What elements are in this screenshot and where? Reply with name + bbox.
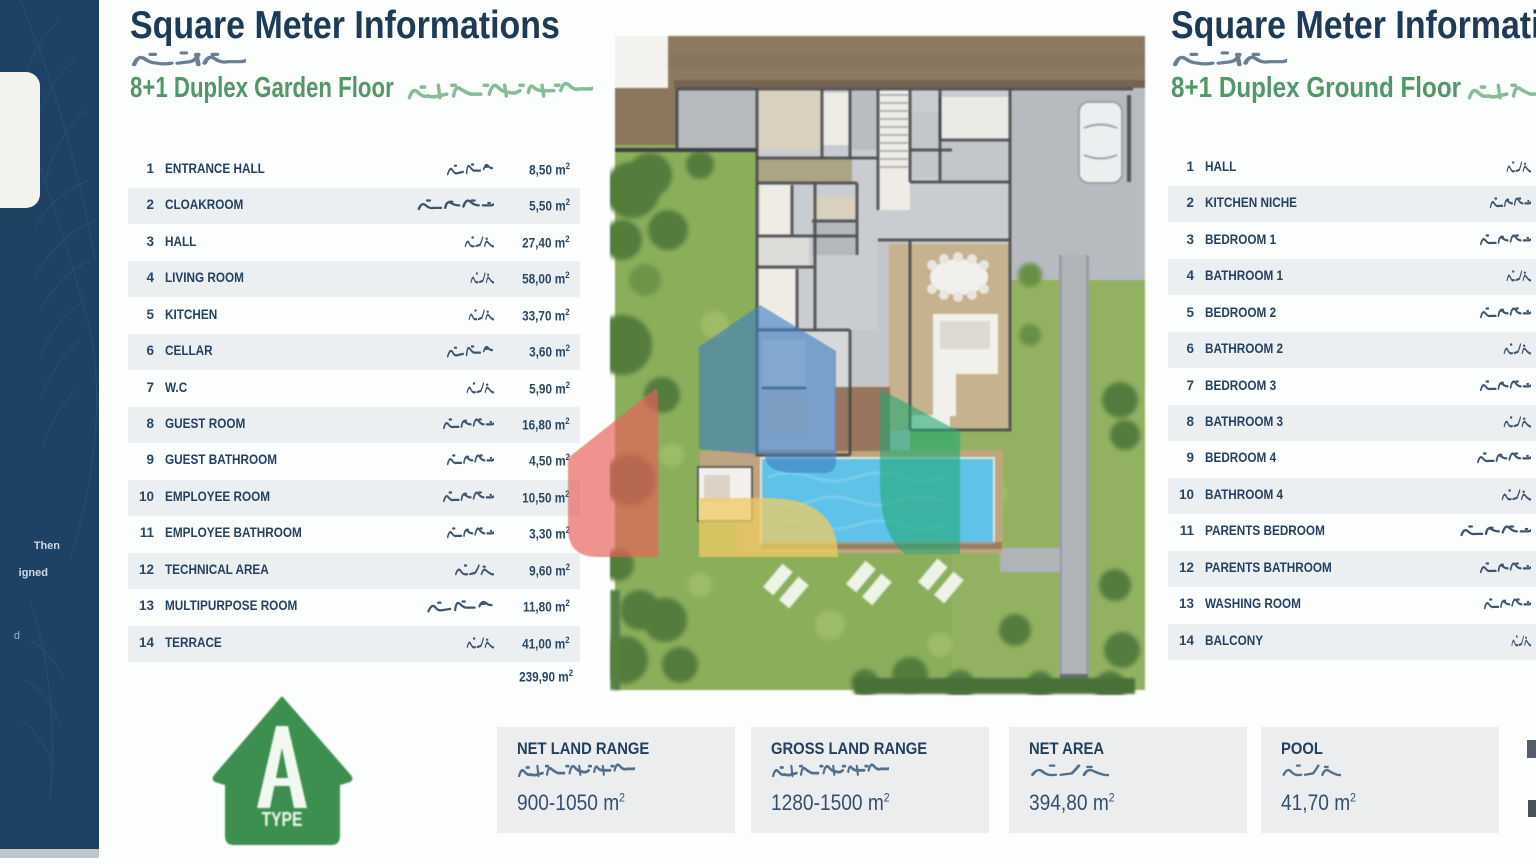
svg-text:TYPE: TYPE <box>262 808 303 830</box>
